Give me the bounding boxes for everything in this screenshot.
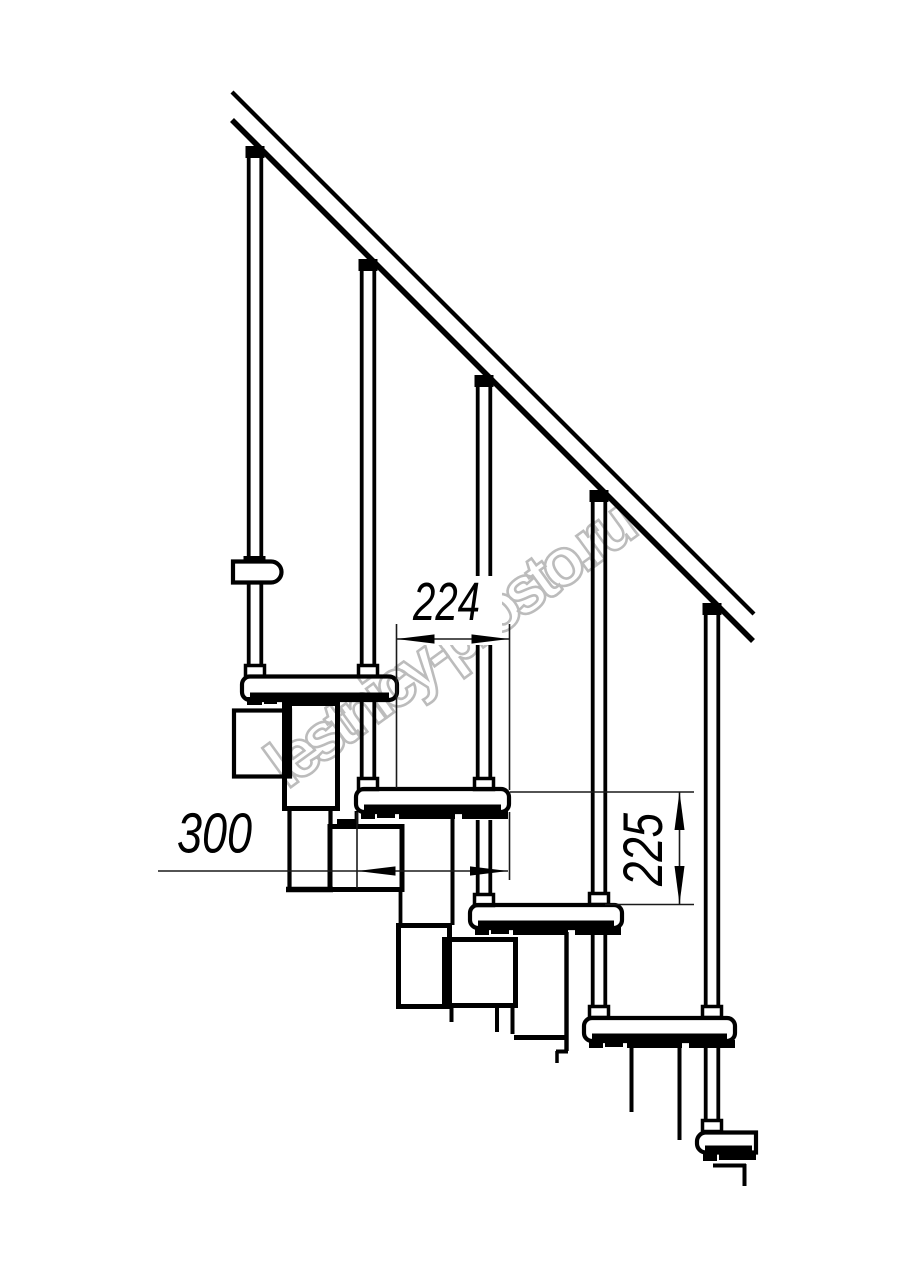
svg-text:225: 225 (611, 812, 674, 886)
svg-text:300: 300 (177, 802, 252, 866)
svg-text:224: 224 (412, 572, 480, 632)
